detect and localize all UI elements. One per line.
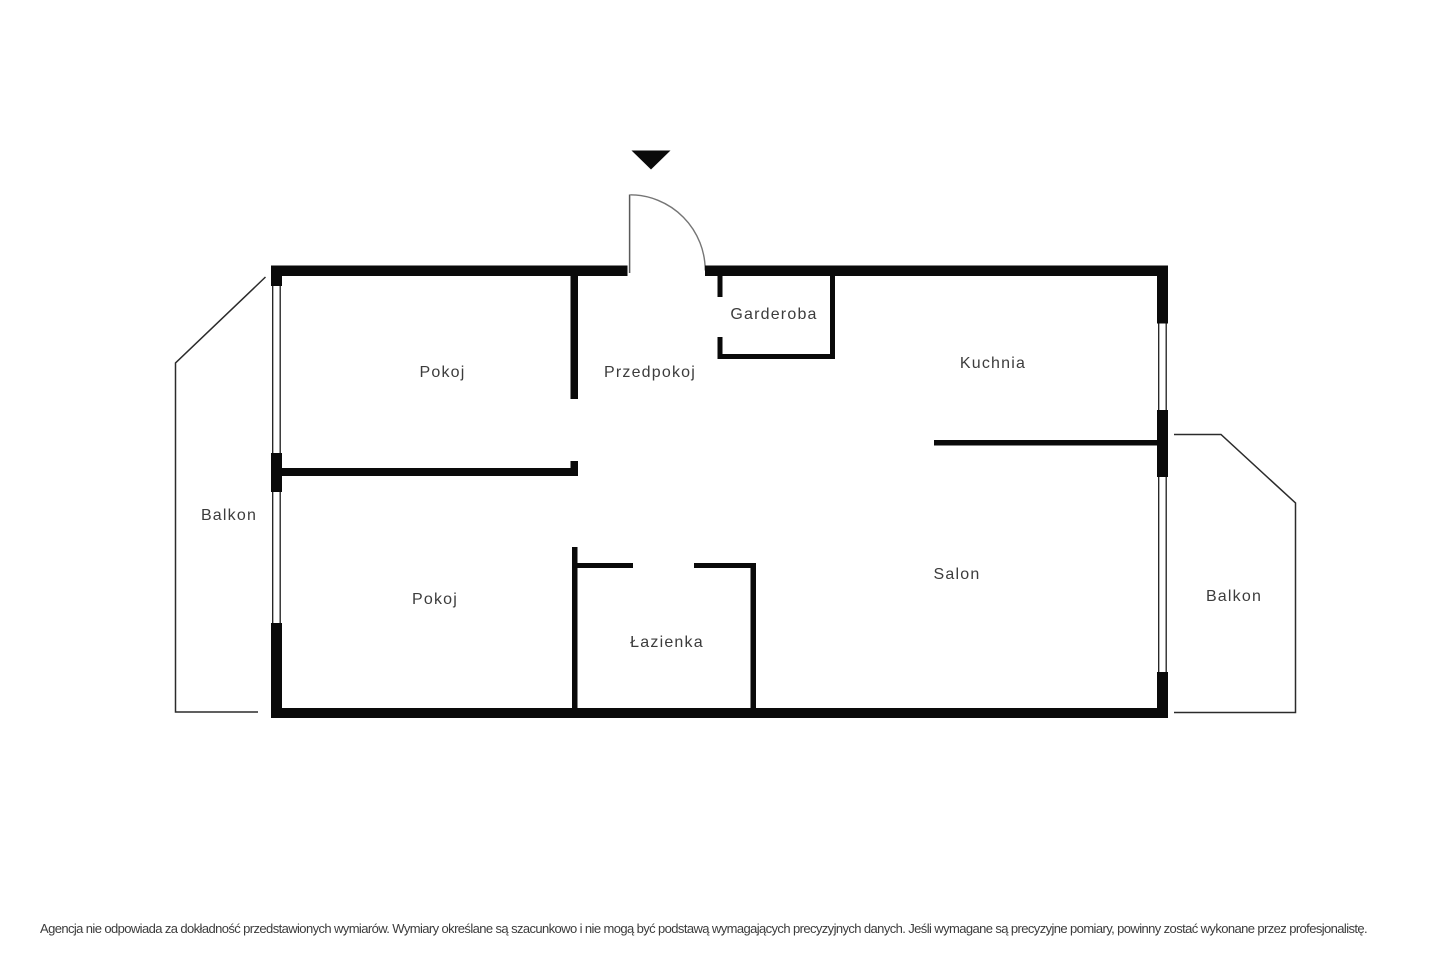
svg-text:Balkon: Balkon bbox=[1206, 588, 1262, 605]
svg-text:Łazienka: Łazienka bbox=[630, 634, 704, 651]
svg-text:Kuchnia: Kuchnia bbox=[960, 355, 1026, 372]
svg-text:Salon: Salon bbox=[934, 566, 981, 583]
svg-text:Przedpokoj: Przedpokoj bbox=[604, 364, 696, 381]
svg-text:Balkon: Balkon bbox=[201, 507, 257, 524]
svg-text:Agencja nie odpowiada za dokła: Agencja nie odpowiada za dokładność prze… bbox=[40, 921, 1367, 936]
svg-text:Pokoj: Pokoj bbox=[412, 591, 458, 608]
svg-text:Pokoj: Pokoj bbox=[419, 364, 465, 381]
svg-text:Garderoba: Garderoba bbox=[730, 306, 817, 323]
